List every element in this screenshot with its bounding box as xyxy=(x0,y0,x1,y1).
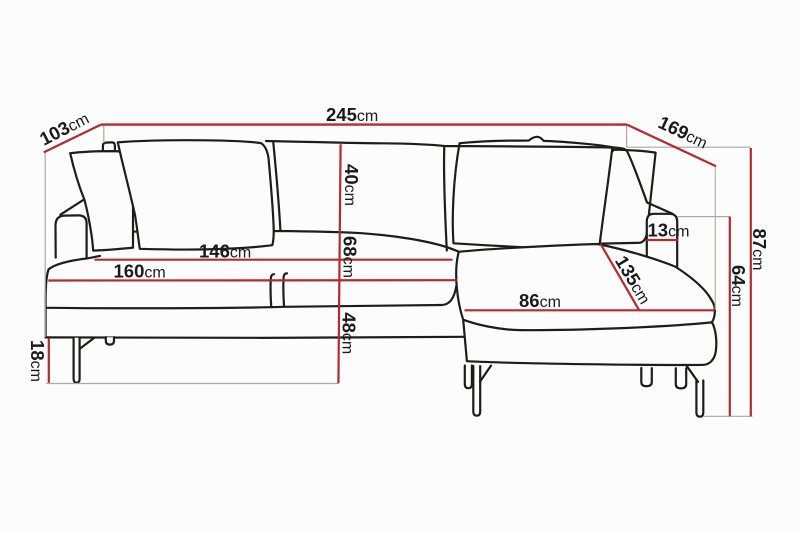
svg-text:245cm: 245cm xyxy=(326,104,378,125)
svg-text:13cm: 13cm xyxy=(648,220,690,241)
svg-text:146cm: 146cm xyxy=(199,240,251,261)
svg-text:64cm: 64cm xyxy=(728,265,749,307)
svg-text:40cm: 40cm xyxy=(341,164,362,206)
svg-text:86cm: 86cm xyxy=(519,290,561,311)
svg-text:87cm: 87cm xyxy=(749,229,770,271)
svg-text:48cm: 48cm xyxy=(338,312,359,354)
svg-text:160cm: 160cm xyxy=(114,261,166,282)
svg-text:18cm: 18cm xyxy=(27,340,48,382)
svg-text:68cm: 68cm xyxy=(340,236,361,278)
